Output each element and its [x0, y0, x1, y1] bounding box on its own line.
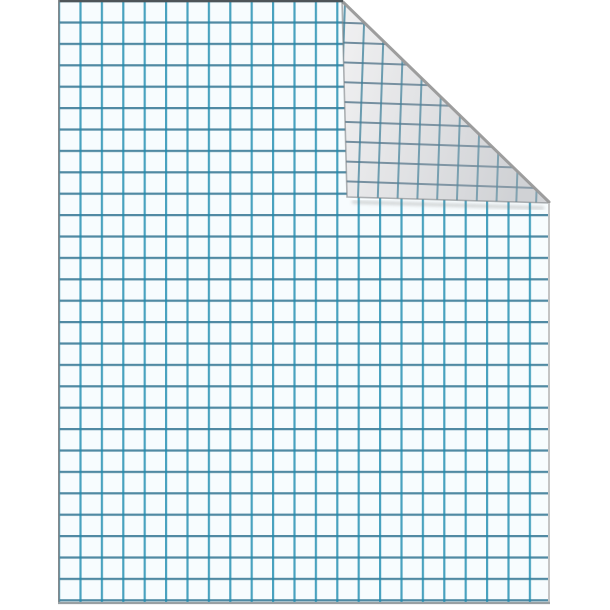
graph-paper-scene: [0, 0, 610, 610]
graph-paper-sheet: [58, 0, 550, 604]
product-image: [0, 0, 610, 610]
